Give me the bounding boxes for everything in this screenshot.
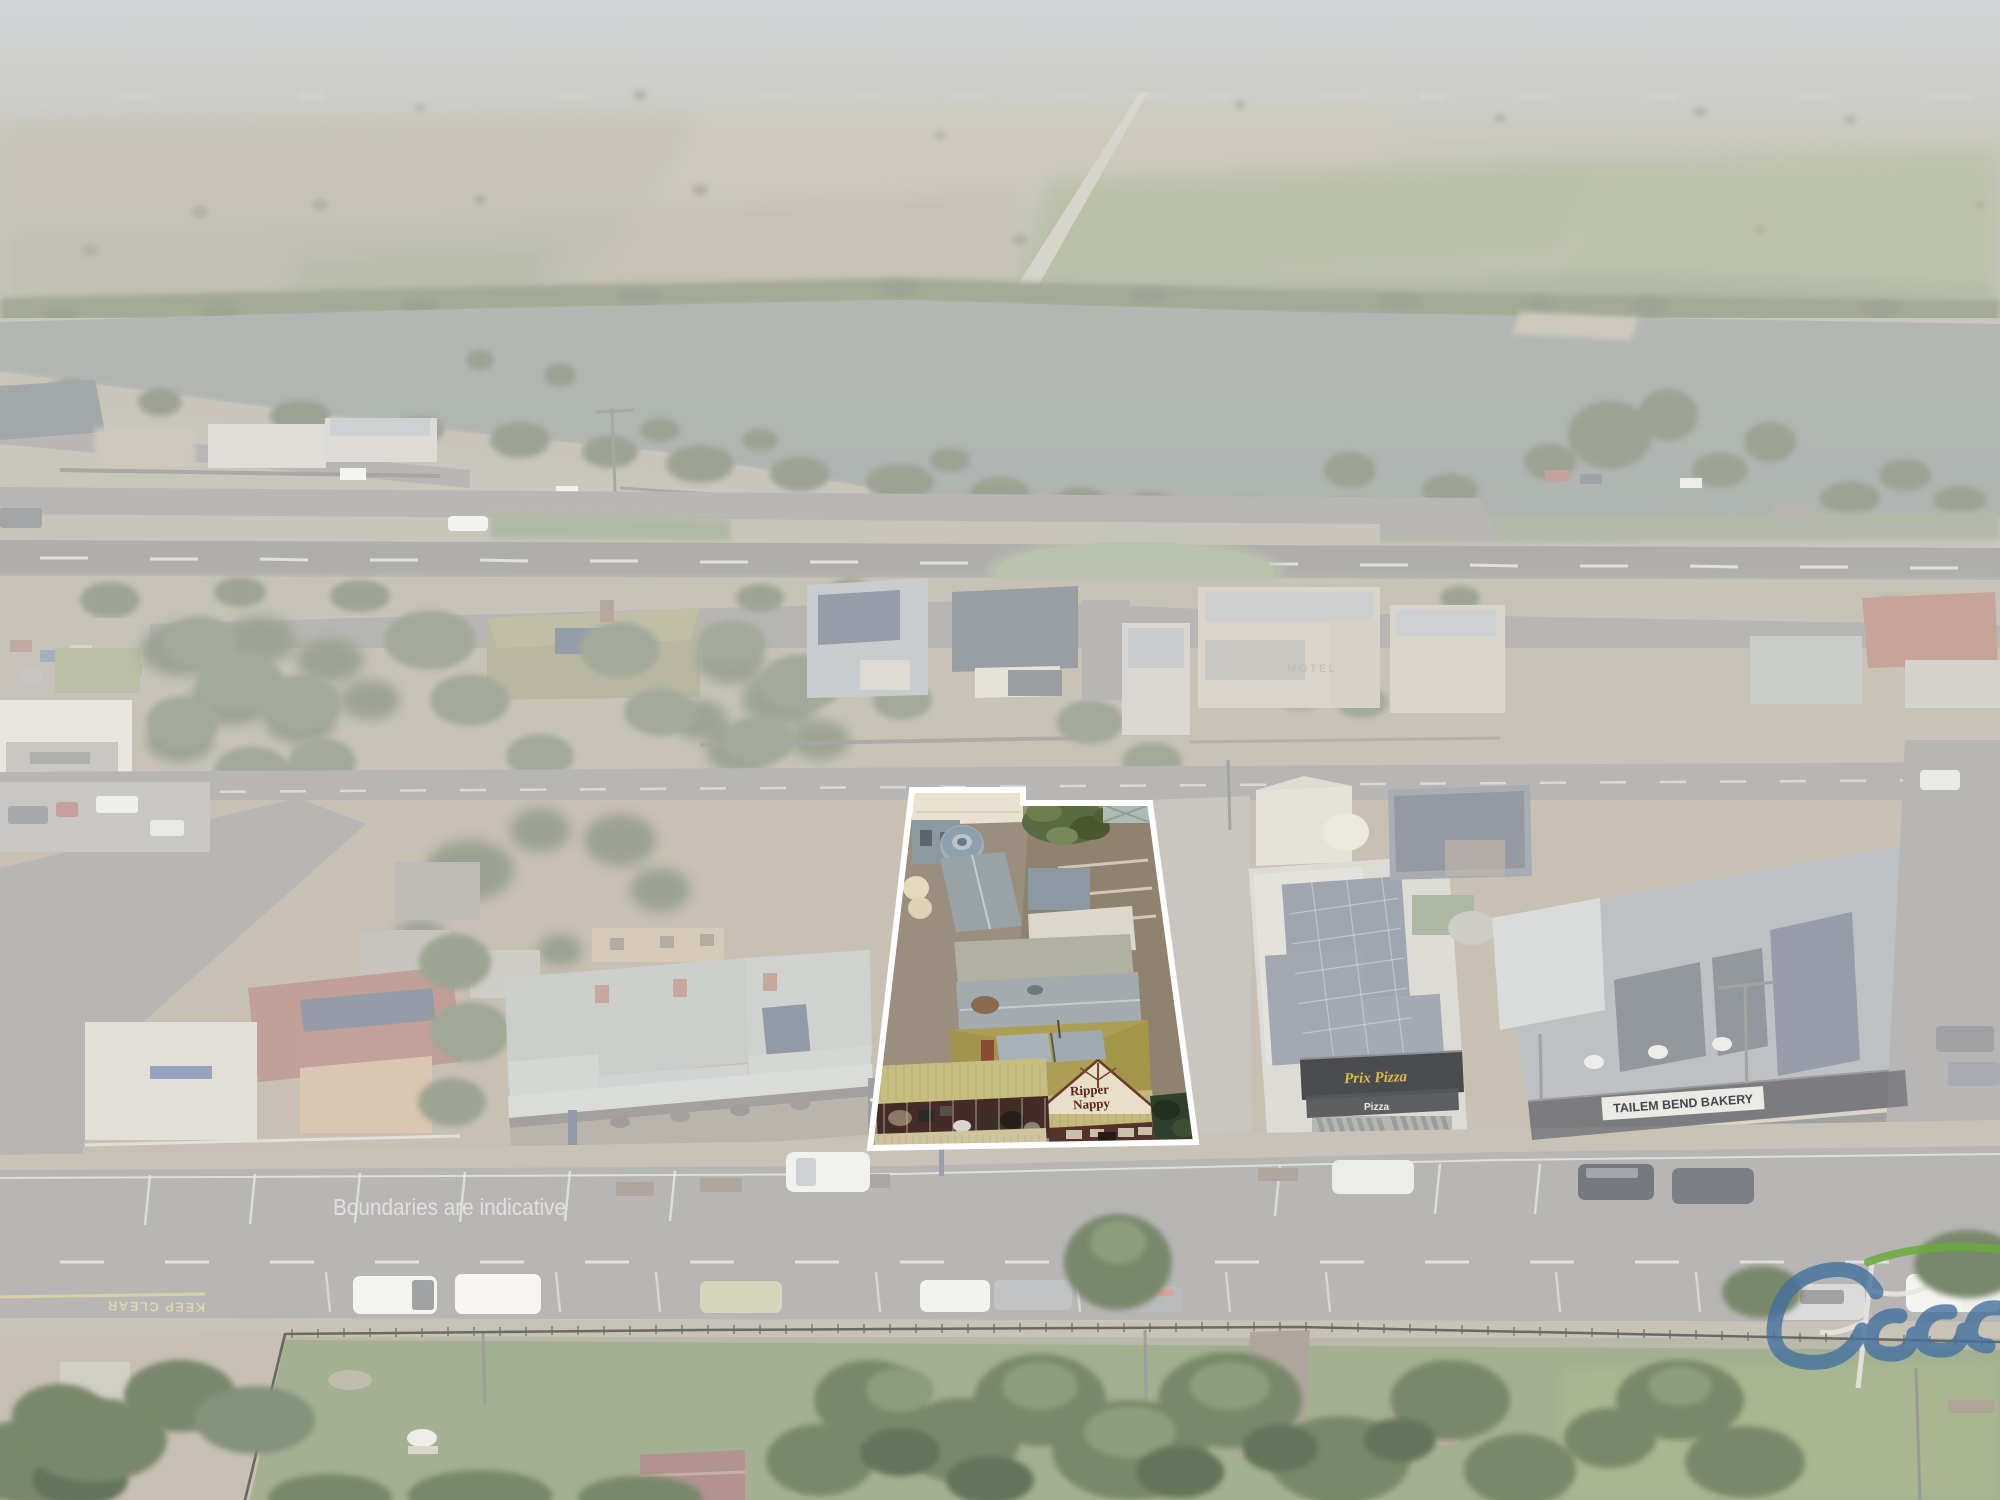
svg-text:Prix Pizza: Prix Pizza [1344,1069,1408,1087]
svg-text:Boundaries are indicative: Boundaries are indicative [333,1194,566,1220]
svg-text:Nappy: Nappy [1073,1095,1111,1112]
svg-text:Pizza: Pizza [1364,1102,1389,1113]
